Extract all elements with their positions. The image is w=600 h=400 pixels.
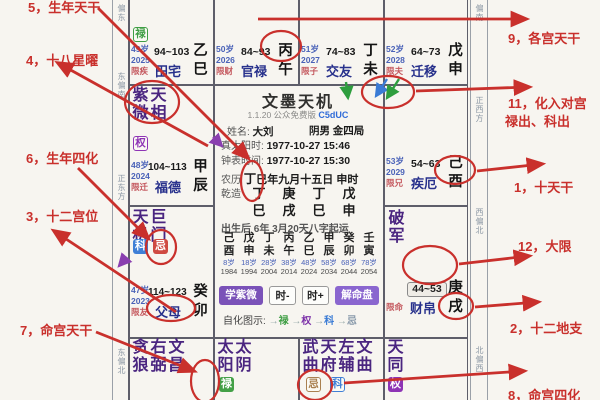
limit-age-block: 49岁2025 限疾 xyxy=(131,44,150,77)
annotation-label-1-ten-stems: 1，十天干 xyxy=(514,177,573,196)
current-decade-range: 44~53 xyxy=(407,282,447,297)
zihua-ji-badge: 忌 xyxy=(306,377,321,392)
limit-ming-label: 限命 xyxy=(386,301,403,313)
compass-label: 偏南 xyxy=(474,4,485,22)
stars-ziwei-tianxiang: 紫微 天相 xyxy=(132,87,167,123)
palace-cell-qianyi[interactable]: 52岁2028 限夫 64~73 迁移 戊申 xyxy=(383,0,468,84)
learn-ziwei-button[interactable]: 学紫微 xyxy=(219,286,263,305)
stem-branch: 丁未 xyxy=(362,42,379,79)
clock-time-row: 钟表时间: 1977-10-27 15:30 xyxy=(221,152,350,167)
dayun-column: 癸卯68岁2044 xyxy=(339,232,359,276)
stem-branch: 丙午 xyxy=(277,42,294,79)
compass-label: 西偏北 xyxy=(474,208,485,235)
birth-ji-badge: 忌 xyxy=(153,239,168,254)
age-range: 54~63 xyxy=(411,158,441,170)
dayun-column: 戊申18岁1994 xyxy=(239,232,259,276)
palace-name: 疾厄 xyxy=(411,173,437,192)
stem-branch: 己酉 xyxy=(447,154,464,191)
annotation-label-4-eighteen-stars: 4，十八星曜 xyxy=(26,50,98,69)
palace-cell-caibo[interactable]: 破军 限命 44~53 财帛 庚戌 xyxy=(383,205,468,337)
limit-age-block: 50岁2026 限财 xyxy=(216,44,235,77)
birth-quan-badge: 权 xyxy=(388,377,403,392)
stars-taiyang-taiyin: 太阳 太阴 xyxy=(217,339,252,375)
annotation-label-7-ming-stem: 7，命宫天干 xyxy=(20,320,92,339)
age-range: 94~103 xyxy=(154,46,189,58)
stem-branch: 癸卯 xyxy=(192,283,209,320)
star-pojun: 破军 xyxy=(388,210,405,246)
qianzao-label: 乾造 xyxy=(221,185,241,200)
dayun-column: 乙巳48岁2024 xyxy=(299,232,319,276)
palace-cell-guanlu[interactable]: 50岁2026 限财 84~93 官禄 丙午 xyxy=(213,0,298,84)
app-version: 1.1.20 公众免费版 C5dUC xyxy=(213,109,383,121)
center-info-panel: 文墨天机 1.1.20 公众免费版 C5dUC 姓名: 大刘 阴男 金四局 真太… xyxy=(213,84,383,337)
dayun-column: 己酉8岁1984 xyxy=(219,232,239,276)
chart-code: C5dUC xyxy=(318,110,348,120)
annotation-label-11-huaru-line1: 11，化入对宫 xyxy=(508,93,587,112)
bazi-branch: 申 xyxy=(341,200,357,219)
palace-name: 福德 xyxy=(155,177,181,196)
stars-wuqu-tianfu-zuofu-wenqu: 武曲 天府 左辅 文曲 xyxy=(302,339,373,375)
palace-cell-jiaoyou[interactable]: 51岁2027 限子 74~83 交友 丁未 xyxy=(298,0,383,84)
birth-lu-badge: 禄 xyxy=(219,377,234,392)
annotation-label-11-huaru-line2: 禄出、科出 xyxy=(505,111,570,130)
compass-label: 正西方 xyxy=(474,96,485,123)
annotation-label-6-birth-sihua: 6，生年四化 xyxy=(26,148,98,167)
palace-cell-tianzhai[interactable]: 禄 49岁2025 限疾 94~103 田宅 乙巳 xyxy=(128,0,213,84)
zihua-legend: 自化图示: →禄 →权 →科 →忌 xyxy=(223,312,357,327)
compass-label: 北偏西 xyxy=(474,346,485,373)
dayun-column: 甲辰58岁2034 xyxy=(319,232,339,276)
stem-branch: 乙巳 xyxy=(192,42,209,79)
palace-name: 父母 xyxy=(155,302,181,321)
age-range: 84~93 xyxy=(241,46,271,58)
palace-cell-ming[interactable]: 贪狼 右弼 文昌 xyxy=(128,337,213,400)
annotation-label-3-twelve-palaces: 3，十二宫位 xyxy=(26,206,98,225)
dayun-column: 丁未28岁2004 xyxy=(259,232,279,276)
palace-cell-jie[interactable]: 53岁2029 限兄 54~63 疾厄 己酉 xyxy=(383,84,468,205)
limit-age-block: 52岁2028 限夫 xyxy=(386,44,405,77)
palace-cell-taiyang[interactable]: 太阳 太阴 禄 xyxy=(213,337,298,400)
palace-name: 交友 xyxy=(326,61,352,80)
zihua-ke-badge: 科 xyxy=(330,377,345,392)
zihua-quan-badge: 权 xyxy=(133,136,148,151)
age-range: 74~83 xyxy=(326,46,356,58)
stars-tanlang-youbi-wenchang: 贪狼 右弼 文昌 xyxy=(132,339,185,375)
compass-label: 东偏北 xyxy=(116,348,127,375)
true-solar-row: 真太阳时: 1977-10-27 15:46 xyxy=(221,137,350,152)
compass-label: 正东方 xyxy=(116,174,127,201)
stem-branch: 戊申 xyxy=(447,42,464,79)
gender-ju-row: 阴男 金四局 xyxy=(309,123,364,138)
annotation-label-9-palace-stems: 9，各宫天干 xyxy=(508,28,580,47)
age-range: 104~113 xyxy=(148,162,187,173)
compass-strip-right: 偏南 正西方 西偏北 北偏西 xyxy=(470,0,488,400)
palace-cell-tiantong[interactable]: 天同 权 xyxy=(383,337,468,400)
compass-label: 东偏南 xyxy=(116,72,127,99)
palace-name: 迁移 xyxy=(411,61,437,80)
limit-age-block: 51岁2027 限子 xyxy=(301,44,320,77)
age-range: 64~73 xyxy=(411,46,441,58)
palace-cell-wuqu[interactable]: 武曲 天府 左辅 文曲 忌 科 xyxy=(298,337,383,400)
palace-name: 财帛 xyxy=(410,298,436,317)
palace-name: 田宅 xyxy=(155,61,181,80)
annotation-label-2-twelve-branches: 2，十二地支 xyxy=(510,318,582,337)
stem-branch: 甲辰 xyxy=(192,158,209,195)
bazi-branch: 巳 xyxy=(311,200,327,219)
bazi-branch: 巳 xyxy=(251,200,267,219)
hour-minus-button[interactable]: 时- xyxy=(269,286,296,305)
annotation-label-12-decade-limit: 12，大限 xyxy=(518,236,571,255)
bazi-branch: 戌 xyxy=(281,200,297,219)
age-range: 114~123 xyxy=(148,287,187,298)
limit-age-block: 53岁2029 限兄 xyxy=(386,156,405,189)
birth-ke-badge: 科 xyxy=(133,239,148,254)
annotation-label-8-ming-sihua: 8，命宫四化 xyxy=(508,385,580,400)
ziwei-chart-screenshot: 偏东 东偏南 正东方 东偏北 偏南 正西方 西偏北 北偏西 禄 49岁2025 … xyxy=(0,0,600,400)
star-tiantong: 天同 xyxy=(387,339,404,375)
palace-cell-fude[interactable]: 紫微 天相 权 48岁2024 限迁 104~113 福德 甲辰 xyxy=(128,84,213,205)
compass-label: 偏东 xyxy=(116,4,127,22)
annotation-label-5-birth-stem: 5，生年天干 xyxy=(28,0,100,16)
dayun-column: 壬寅78岁2054 xyxy=(359,232,379,276)
interpret-chart-button[interactable]: 解命盘 xyxy=(335,286,379,305)
palace-cell-fumu[interactable]: 天机 巨门 科 忌 47岁2023 限友 114~123 父母 癸卯 xyxy=(128,205,213,337)
dayun-column: 丙午38岁2014 xyxy=(279,232,299,276)
hour-plus-button[interactable]: 时+ xyxy=(302,286,329,305)
zihua-lu-badge: 禄 xyxy=(133,27,148,42)
palace-name: 官禄 xyxy=(241,61,267,80)
stem-branch: 庚戌 xyxy=(447,279,464,316)
